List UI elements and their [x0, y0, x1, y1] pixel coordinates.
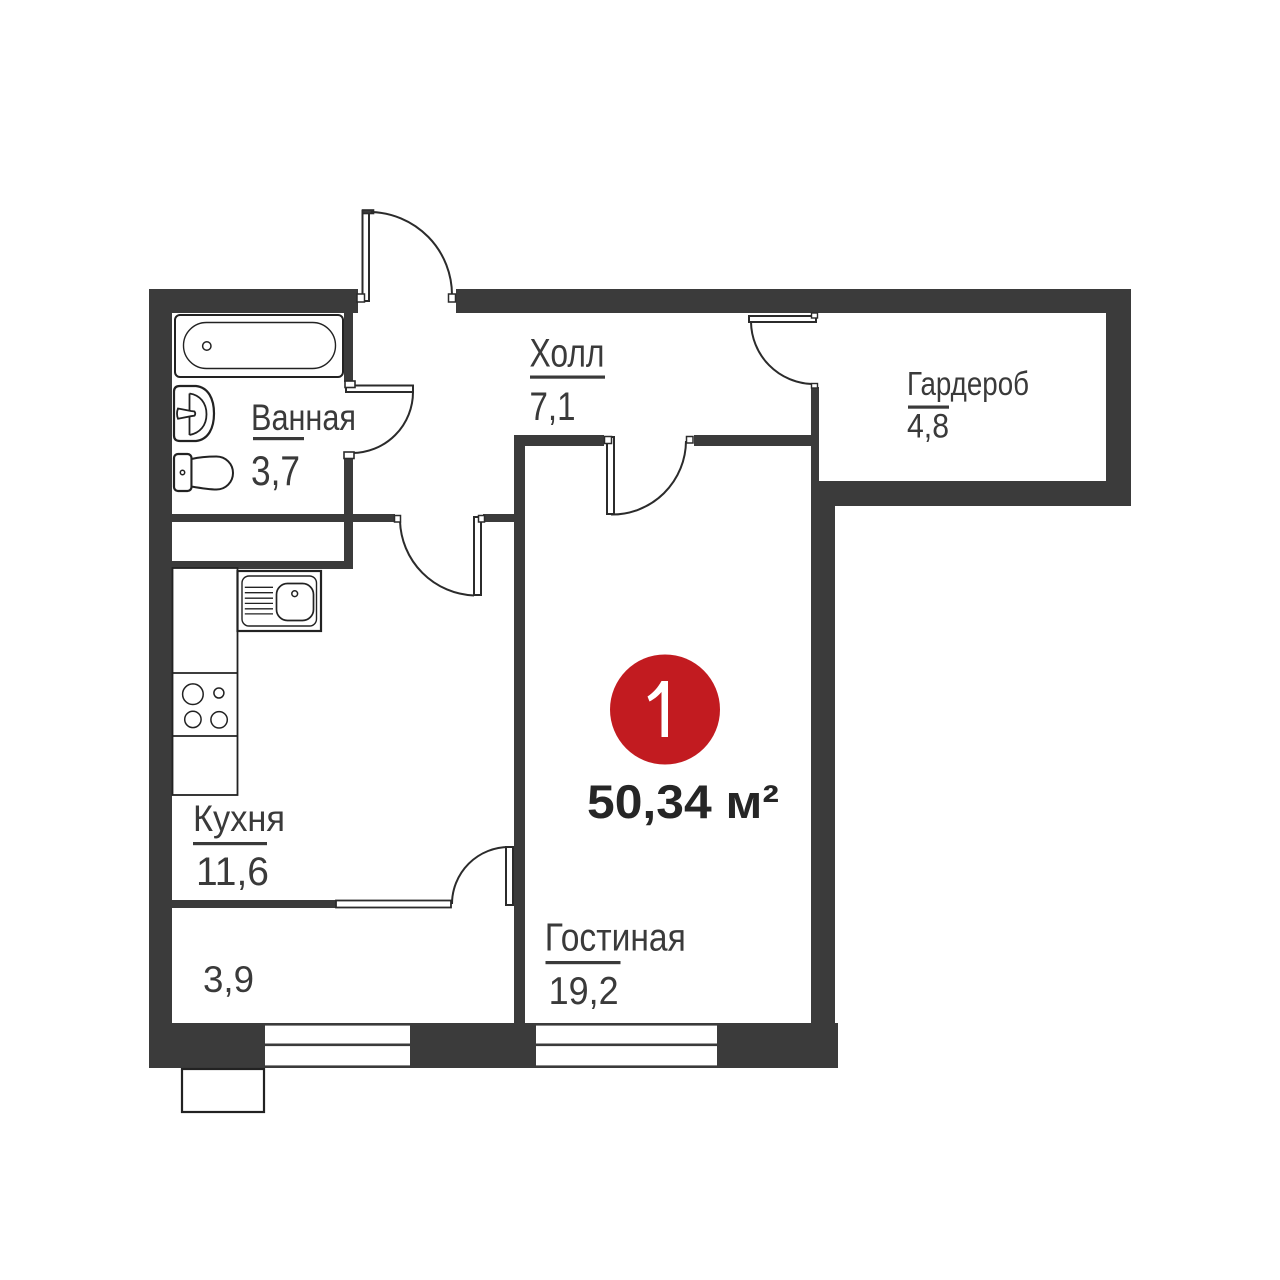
svg-text:Гостиная: Гостиная	[545, 917, 686, 960]
svg-text:50,34 м²: 50,34 м²	[587, 775, 779, 828]
svg-text:3,7: 3,7	[251, 447, 300, 494]
svg-text:3,9: 3,9	[203, 959, 254, 1000]
svg-text:Гардероб: Гардероб	[907, 365, 1029, 402]
svg-text:19,2: 19,2	[549, 970, 619, 1013]
svg-text:Ванная: Ванная	[251, 397, 356, 438]
svg-text:Холл: Холл	[530, 332, 605, 376]
svg-text:Кухня: Кухня	[193, 798, 285, 839]
svg-text:4,8: 4,8	[907, 408, 949, 446]
svg-text:11,6: 11,6	[196, 850, 269, 894]
svg-text:7,1: 7,1	[530, 385, 576, 429]
